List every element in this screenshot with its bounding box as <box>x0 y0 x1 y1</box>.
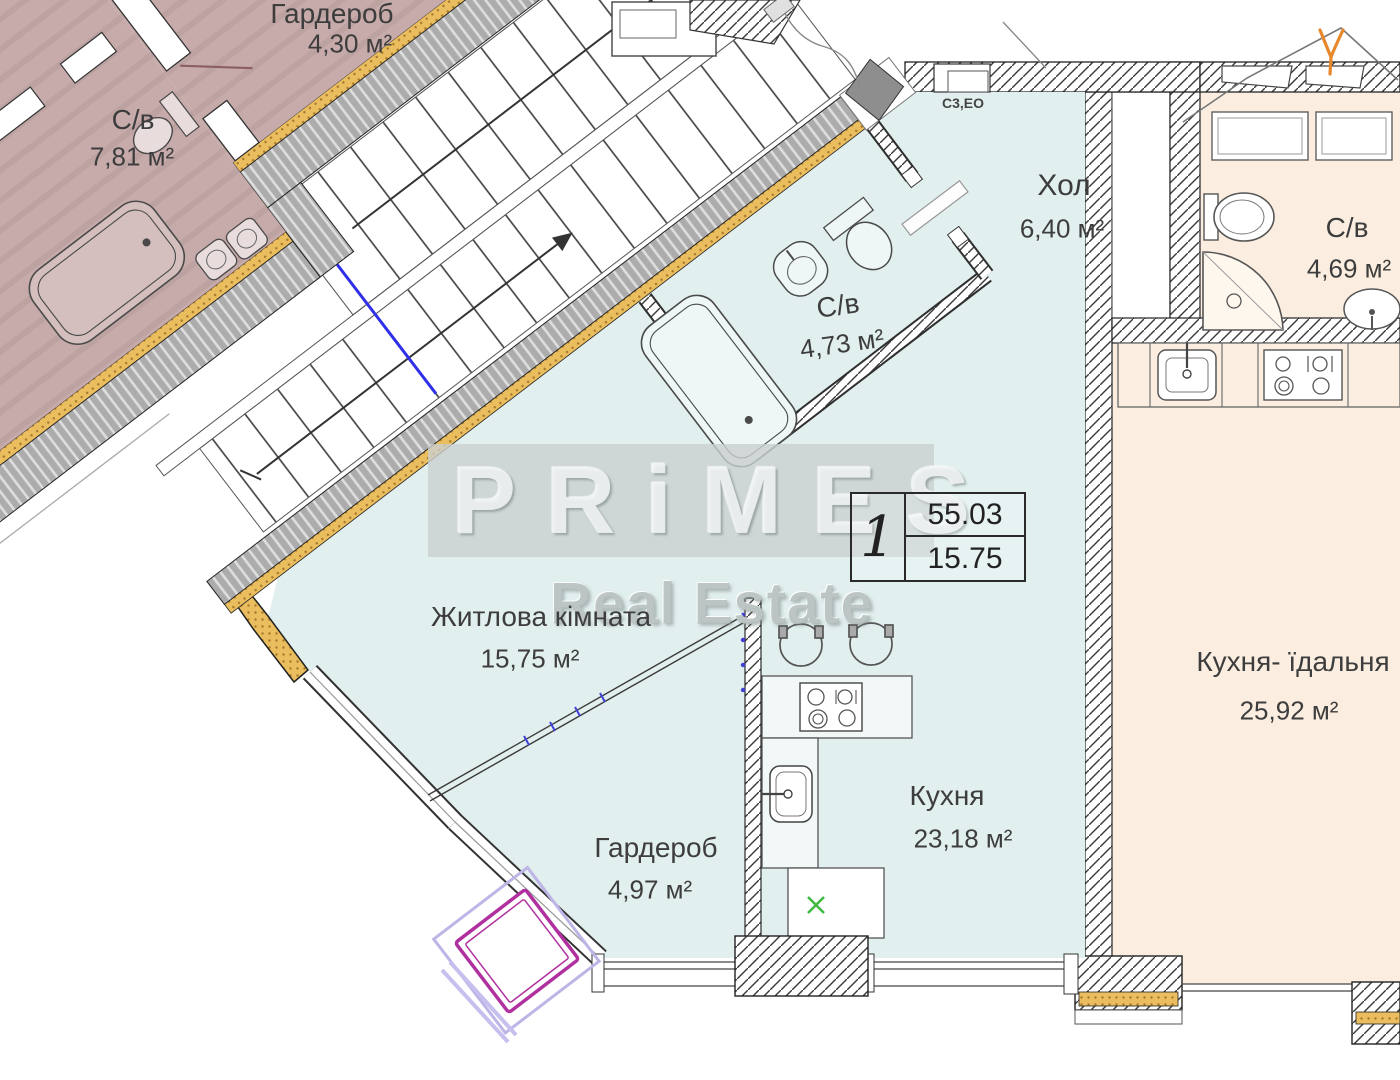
washing-machine-icon <box>1316 112 1392 160</box>
kitchen-counter <box>1118 343 1400 407</box>
sink-icon <box>1344 289 1400 330</box>
room-label-wardrobe-430-area: 4,30 м² <box>308 29 392 60</box>
room-label-bathroom-469-area: 4,69 м² <box>1307 254 1391 285</box>
shaft <box>620 10 676 38</box>
electrical-label: С3,ЕО <box>942 95 984 111</box>
power-cable <box>1003 22 1046 68</box>
room-label-living-name: Житлова кімната <box>431 601 651 633</box>
wall <box>1170 62 1200 330</box>
room-label-kitchen-name: Кухня <box>910 780 985 812</box>
room-label-kitchen-dining-name: Кухня- їдальня <box>1196 646 1389 678</box>
room-label-wardrobe-497-name: Гардероб <box>594 832 717 864</box>
cabinet <box>1212 112 1308 160</box>
window-jamb <box>1064 954 1078 994</box>
partition-wall <box>745 598 761 942</box>
room-label-bathroom-781-name: С/в <box>112 104 155 136</box>
insulation <box>1356 1012 1400 1024</box>
room-label-hall-name: Хол <box>1037 169 1090 203</box>
floor-plan: PRiMES Real Estate Гардероб 4,30 м² С/в … <box>0 0 1400 1080</box>
window <box>1306 66 1364 88</box>
electrical-box <box>934 64 990 92</box>
room-label-bathroom-473-name: С/в <box>815 287 862 325</box>
room-label-wardrobe-497-area: 4,97 м² <box>608 875 692 906</box>
toilet-icon <box>1204 193 1274 241</box>
ledge <box>1075 1010 1182 1024</box>
insulation <box>1079 992 1178 1006</box>
total-area-value: 55.03 <box>906 494 1024 537</box>
apartment-number: 1 <box>852 494 906 580</box>
room-label-kitchen-area: 23,18 м² <box>914 824 1013 855</box>
room-label-kitchen-dining-area: 25,92 м² <box>1240 696 1339 727</box>
living-area-value: 15.75 <box>906 537 1024 580</box>
appliance-box <box>788 868 884 938</box>
room-label-bathroom-781-area: 7,81 м² <box>90 142 174 173</box>
room-label-bathroom-469-name: С/в <box>1326 212 1369 244</box>
room-label-wardrobe-430-name: Гардероб <box>270 0 393 30</box>
stove-icon <box>800 683 862 731</box>
room-label-hall-area: 6,40 м² <box>1020 214 1104 245</box>
room-label-living-area: 15,75 м² <box>481 644 580 675</box>
stove-icon <box>1264 350 1342 400</box>
duct-shaft <box>1112 92 1170 330</box>
wall <box>735 936 868 996</box>
apartment-info-box: 1 55.03 15.75 <box>850 492 1026 582</box>
